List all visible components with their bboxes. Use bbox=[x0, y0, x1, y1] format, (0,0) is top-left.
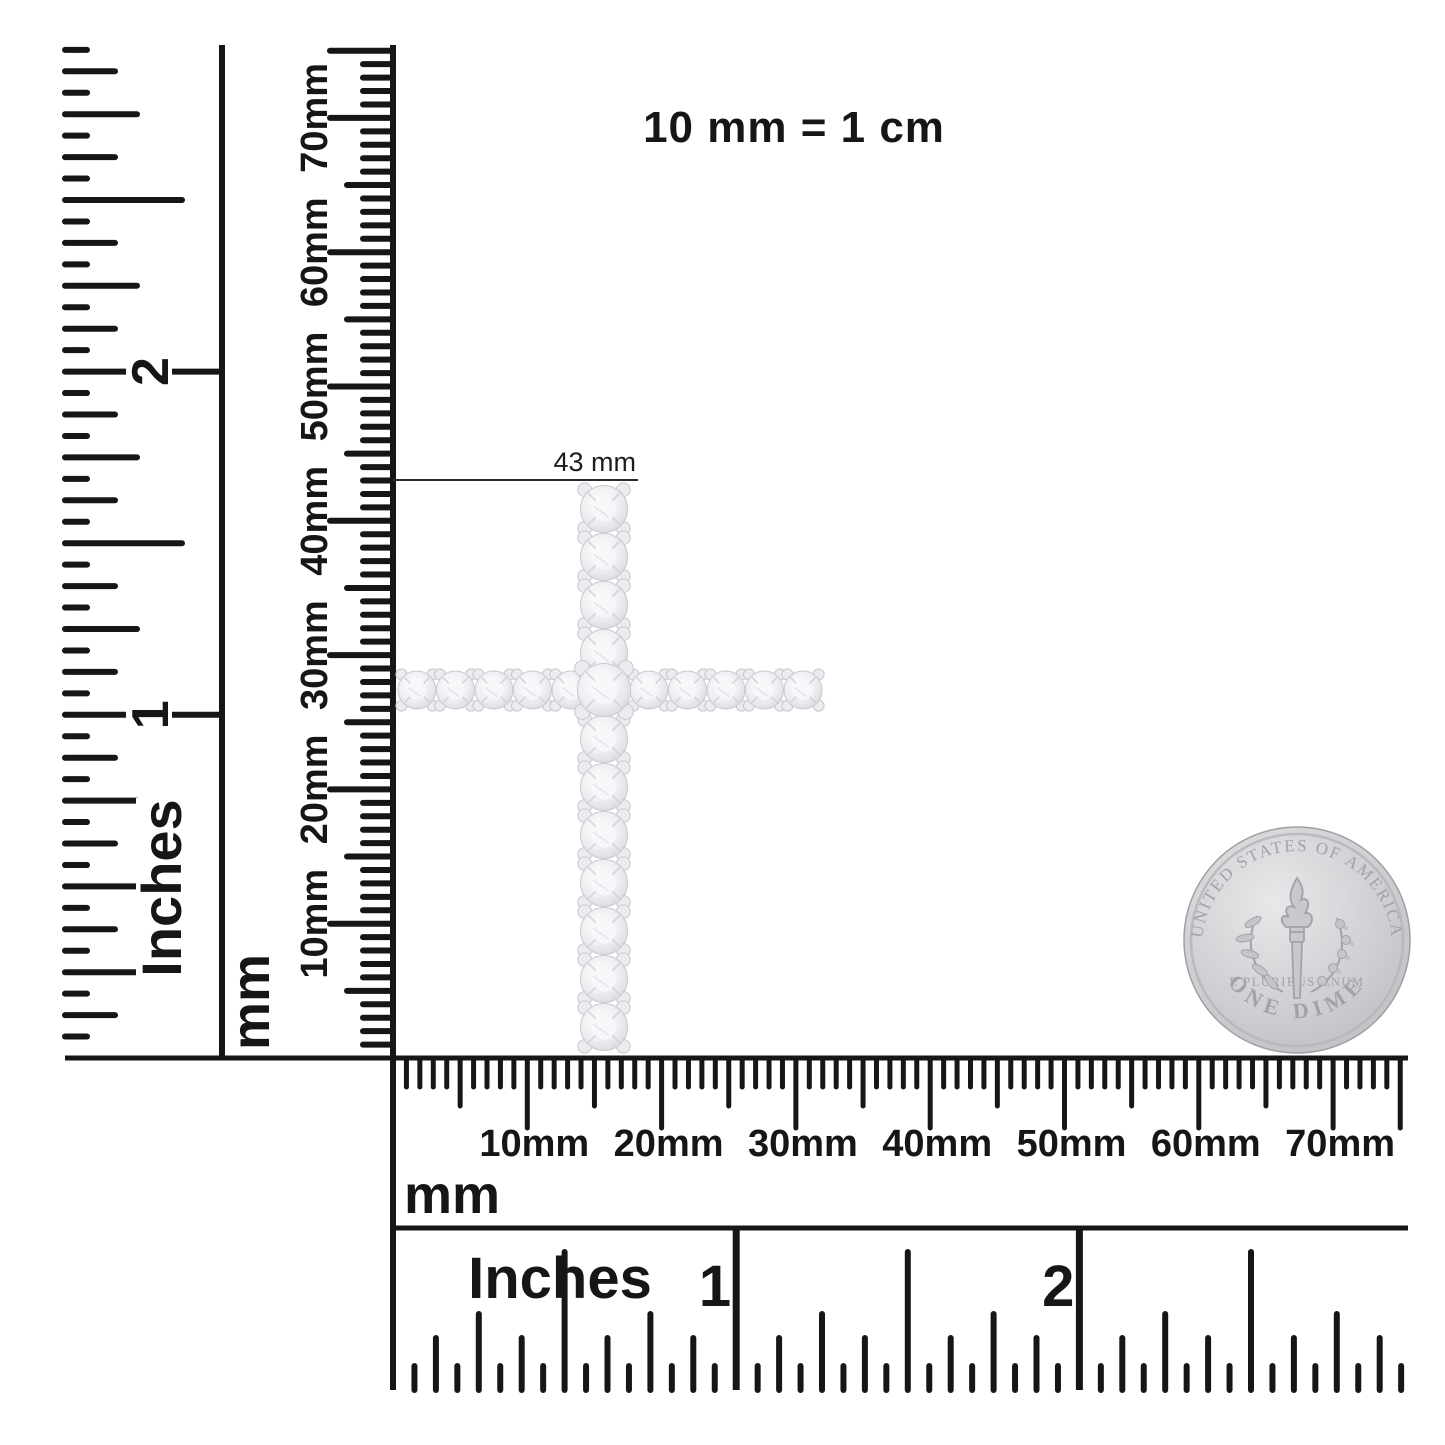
diamond-stone bbox=[578, 953, 630, 1005]
pendant-height-label: 43 mm bbox=[393, 447, 636, 478]
mm-tick-label: 60mm bbox=[1151, 1123, 1261, 1165]
diamond-stone bbox=[666, 669, 708, 711]
diamond-stone bbox=[578, 483, 630, 535]
unit-label: Inches bbox=[130, 799, 193, 976]
mm-tick-label: 20mm bbox=[614, 1123, 724, 1165]
left-inches-ruler: 12Inches bbox=[65, 50, 222, 1037]
diamond-stone bbox=[575, 661, 634, 720]
unit-label: Inches bbox=[468, 1246, 652, 1311]
ruler-frame-lines bbox=[65, 45, 1408, 1390]
diamond-stone bbox=[578, 531, 630, 583]
diamond-stone bbox=[396, 669, 438, 711]
mm-tick-label: 70mm bbox=[294, 63, 336, 173]
mm-tick-label: 70mm bbox=[1285, 1123, 1395, 1165]
diamond-stone bbox=[473, 669, 515, 711]
mm-tick-label: 50mm bbox=[1017, 1123, 1127, 1165]
unit-label: mm bbox=[404, 1165, 500, 1225]
diamond-stone bbox=[578, 809, 630, 861]
inch-numeral: 2 bbox=[122, 357, 180, 386]
mm-tick-label: 60mm bbox=[294, 197, 336, 307]
scale-note: 10 mm = 1 cm bbox=[638, 103, 950, 153]
diamond-stone bbox=[743, 669, 785, 711]
bottom-mm-ruler: 10mm20mm30mm40mm50mm60mm70mmmm bbox=[404, 1060, 1400, 1225]
diamond-stone bbox=[782, 669, 824, 711]
diagram-canvas: 12Inches 10mm20mm30mm40mm50mm60mm70mmmm … bbox=[0, 0, 1445, 1445]
mm-tick-label: 10mm bbox=[479, 1123, 589, 1165]
mm-tick-label: 20mm bbox=[294, 734, 336, 844]
bottom-inches-ruler: 12Inches bbox=[414, 1228, 1401, 1390]
diamond-stone bbox=[578, 857, 630, 909]
mm-tick-label: 30mm bbox=[748, 1123, 858, 1165]
mm-tick-label: 40mm bbox=[882, 1123, 992, 1165]
mm-tick-label: 40mm bbox=[294, 466, 336, 576]
inch-numeral: 1 bbox=[699, 1254, 731, 1319]
coin-face: UNITED STATES OF AMERICAONE DIMEE PLURIB… bbox=[1184, 827, 1410, 1053]
diamond-stone bbox=[578, 579, 630, 631]
pendant-cross bbox=[396, 483, 824, 1053]
mm-tick-label: 50mm bbox=[294, 332, 336, 442]
inch-numeral: 1 bbox=[122, 700, 180, 729]
dime-coin: UNITED STATES OF AMERICAONE DIMEE PLURIB… bbox=[1184, 827, 1410, 1053]
diamond-stone bbox=[578, 905, 630, 957]
diamond-stone bbox=[705, 669, 747, 711]
unit-label: mm bbox=[221, 954, 281, 1050]
diamond-stone bbox=[578, 1001, 630, 1053]
measurement-diagram: 12Inches 10mm20mm30mm40mm50mm60mm70mmmm … bbox=[0, 0, 1445, 1445]
mm-tick-label: 30mm bbox=[294, 600, 336, 710]
inch-numeral: 2 bbox=[1042, 1254, 1074, 1319]
diamond-stone bbox=[578, 761, 630, 813]
diamond-stone bbox=[511, 669, 553, 711]
diamond-stone bbox=[578, 713, 630, 765]
left-mm-ruler: 10mm20mm30mm40mm50mm60mm70mmmm bbox=[221, 51, 393, 1050]
diamond-stone bbox=[628, 669, 670, 711]
mm-tick-label: 10mm bbox=[294, 869, 336, 979]
diamond-stone bbox=[434, 669, 476, 711]
pendant-height-line bbox=[393, 479, 638, 481]
